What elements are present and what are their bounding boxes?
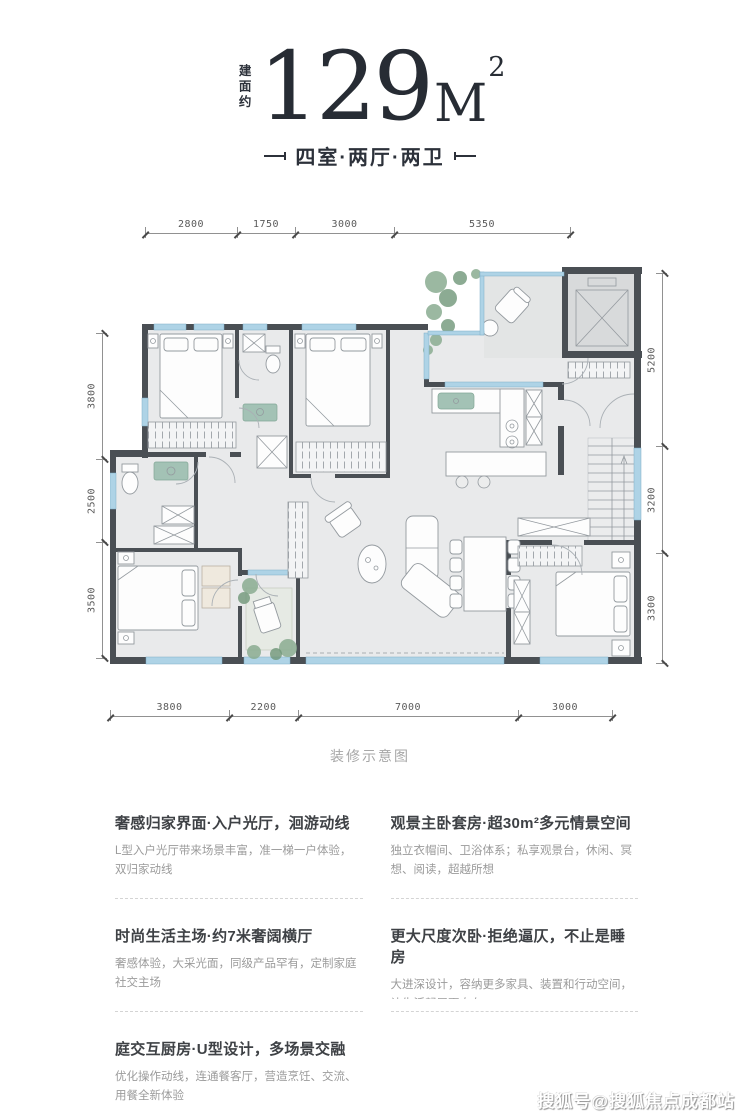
dining-table <box>464 537 506 611</box>
feature-body: 大进深设计，容纳更多家具、装置和行动空间，让生活起居更自在 <box>391 976 639 999</box>
area-figure: 建面约 129 M 2 <box>235 50 506 124</box>
dim-label: 3000 <box>518 702 612 713</box>
kitchen-island <box>446 452 546 476</box>
dim-label: 3500 <box>86 542 98 658</box>
dimension-bar-right: 5200 3200 3300 <box>646 273 662 663</box>
area-prefix-label: 建面约 <box>235 64 254 111</box>
dim-label: 3300 <box>646 553 658 663</box>
plan-caption: 装修示意图 <box>0 746 740 766</box>
feature-title: 庭交互厨房·U型设计，多场景交融 <box>115 1038 363 1059</box>
decorative-line-left-icon <box>264 155 286 157</box>
feature-body: L型入户光厅带来场景丰富，准一梯一户体验，双归家动线 <box>115 842 363 880</box>
page: 建面约 129 M 2 四室·两厅·两卫 2800 1750 3000 5350… <box>0 0 740 1120</box>
dimension-bar-top: 2800 1750 3000 5350 <box>145 217 570 233</box>
courtyard <box>238 578 297 660</box>
layout-label: 四室·两厅·两卫 <box>295 141 444 170</box>
watermark: 搜狐号@搜狐焦点成都站 <box>537 1087 735 1112</box>
dim-label: 1750 <box>237 219 295 230</box>
feature-title: 观景主卧套房·超30m²多元情景空间 <box>391 812 639 833</box>
dashed-divider <box>115 1011 363 1012</box>
dimension-bar-bottom: 3800 2200 7000 3000 <box>110 700 612 716</box>
dim-label: 3000 <box>295 219 394 230</box>
features-column-left: 奢感归家界面·入户光厅，洄游动线 L型入户光厅带来场景丰富，准一梯一户体验，双归… <box>115 812 363 1112</box>
decorative-line-right-icon <box>454 155 476 157</box>
floor-plan <box>110 250 645 665</box>
layout-spec: 四室·两厅·两卫 <box>264 141 475 170</box>
feature-item: 时尚生活主场·约7米奢阔横厅 奢感体验，大采光面，同级产品罕有，定制家庭社交主场 <box>115 925 363 999</box>
terrace-railing <box>428 331 484 335</box>
feature-item: 更大尺度次卧·拒绝逼仄，不止是睡房 大进深设计，容纳更多家具、装置和行动空间，让… <box>391 925 639 999</box>
stairs <box>588 438 636 544</box>
feature-item: 观景主卧套房·超30m²多元情景空间 独立衣帽间、卫浴体系；私享观景台，休闲、冥… <box>391 812 639 886</box>
terrace-railing <box>480 272 484 335</box>
feature-body: 独立衣帽间、卫浴体系；私享观景台，休闲、冥想、阅读，超越所想 <box>391 842 639 880</box>
dim-label: 2800 <box>145 219 237 230</box>
dim-label: 3800 <box>86 333 98 459</box>
header: 建面约 129 M 2 四室·两厅·两卫 <box>0 50 740 170</box>
dim-label: 2500 <box>86 459 98 542</box>
area-unit: M <box>434 85 487 125</box>
dim-label: 5350 <box>394 219 570 230</box>
dimension-bar-left: 3800 2500 3500 <box>86 333 102 658</box>
elevator <box>562 267 642 358</box>
dim-label: 7000 <box>298 702 518 713</box>
dashed-divider <box>115 898 363 899</box>
features: 奢感归家界面·入户光厅，洄游动线 L型入户光厅带来场景丰富，准一梯一户体验，双归… <box>115 812 638 1112</box>
dim-label: 3800 <box>110 702 229 713</box>
features-column-right: 观景主卧套房·超30m²多元情景空间 独立衣帽间、卫浴体系；私享观景台，休闲、冥… <box>391 812 639 1112</box>
feature-item: 庭交互厨房·U型设计，多场景交融 优化操作动线，连通餐客厅，营造烹饪、交流、用餐… <box>115 1038 363 1112</box>
area-number: 129 <box>259 50 431 124</box>
feature-title: 更大尺度次卧·拒绝逼仄，不止是睡房 <box>391 925 639 967</box>
feature-title: 时尚生活主场·约7米奢阔横厅 <box>115 925 363 946</box>
area-superscript: 2 <box>488 52 505 83</box>
feature-item: 奢感归家界面·入户光厅，洄游动线 L型入户光厅带来场景丰富，准一梯一户体验，双归… <box>115 812 363 886</box>
feature-title: 奢感归家界面·入户光厅，洄游动线 <box>115 812 363 833</box>
dim-label: 3200 <box>646 446 658 553</box>
feature-body: 优化操作动线，连通餐客厅，营造烹饪、交流、用餐全新体验 <box>115 1068 363 1106</box>
dashed-divider <box>391 898 639 899</box>
terrace-railing <box>480 272 564 276</box>
feature-body: 奢感体验，大采光面，同级产品罕有，定制家庭社交主场 <box>115 955 363 993</box>
dim-label: 5200 <box>646 273 658 446</box>
dashed-divider <box>391 1011 639 1012</box>
dim-label: 2200 <box>229 702 298 713</box>
